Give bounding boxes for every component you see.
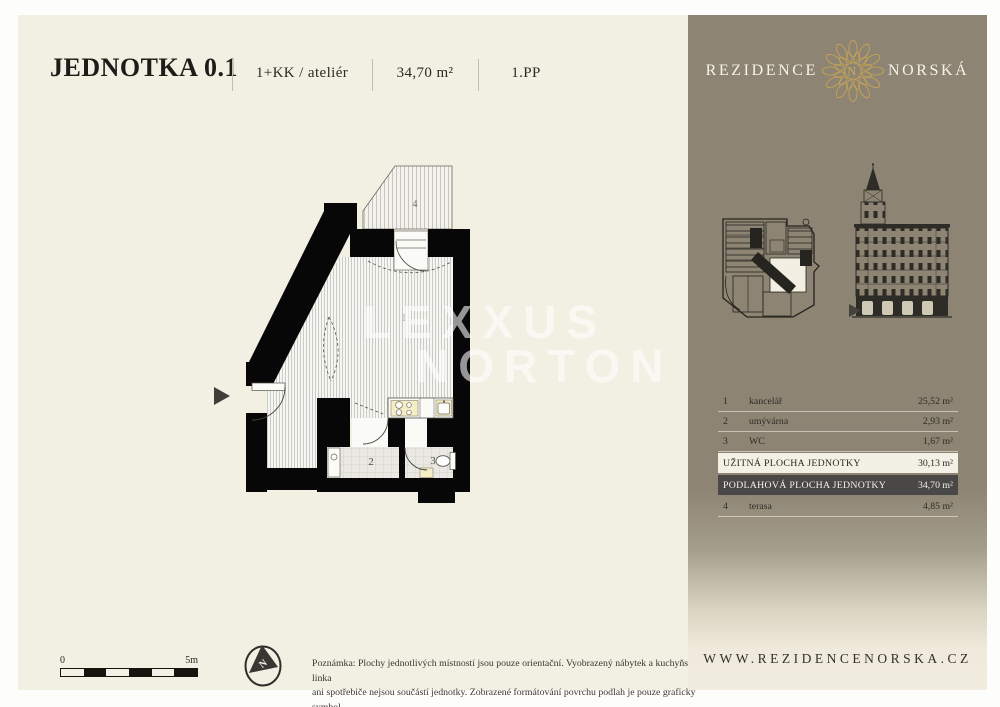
legend-room-area: 2,93 m²: [923, 416, 953, 427]
unit-layout-label: 1+KK / ateliér: [232, 65, 372, 82]
website-link[interactable]: WWW.REZIDENCENORSKA.CZ: [688, 651, 987, 667]
room-legend-table: 1 kancelář 25,52 m² 2 umývárna 2,93 m² 3…: [718, 392, 958, 517]
legend-total-floor: PODLAHOVÁ PLOCHA JEDNOTKY 34,70 m²: [718, 475, 958, 495]
legend-total-label: UŽITNÁ PLOCHA JEDNOTKY: [723, 458, 918, 469]
legend-room-name: terasa: [749, 501, 923, 512]
brand-name-right: NORSKÁ: [888, 62, 969, 80]
legend-room-area: 25,52 m²: [918, 396, 953, 407]
legend-room-name: kancelář: [749, 396, 918, 407]
room-label-3: 3: [430, 455, 436, 467]
unit-floor-label: 1.PP: [478, 65, 574, 82]
legend-room-number: 1: [723, 396, 749, 407]
legend-total-area: 34,70 m²: [918, 480, 953, 491]
page-card: JEDNOTKA 0.1 1+KK / ateliér 34,70 m² 1.P…: [18, 15, 987, 690]
building-elevation-image: [848, 160, 958, 325]
room-label-4: 4: [413, 199, 418, 210]
brochure-page: JEDNOTKA 0.1 1+KK / ateliér 34,70 m² 1.P…: [0, 0, 1000, 707]
page-title: JEDNOTKA 0.1: [50, 53, 238, 83]
legend-room-area: 1,67 m²: [923, 436, 953, 447]
disclaimer-note: Poznámka: Plochy jednotlivých místností …: [312, 657, 704, 707]
note-line2: ani spotřebiče nejsou součástí jednotky.…: [312, 687, 696, 707]
legend-room-number: 2: [723, 416, 749, 427]
legend-room-name: umývárna: [749, 416, 923, 427]
legend-room-area: 4,85 m²: [923, 501, 953, 512]
kitchen-counter: [388, 398, 453, 418]
stove: [391, 401, 418, 417]
scale-start-label: 0: [60, 655, 65, 666]
note-line1: Poznámka: Plochy jednotlivých místností …: [312, 658, 697, 684]
brand-wreath-icon: N: [821, 39, 885, 103]
watermark-line2: NORTON: [415, 343, 674, 389]
legend-total-usable: UŽITNÁ PLOCHA JEDNOTKY 30,13 m²: [718, 453, 958, 473]
entrance-door-leaf: [252, 383, 285, 391]
scale-bar: 0 5m: [60, 655, 198, 677]
legend-row-3: 3 WC 1,67 m²: [718, 432, 958, 452]
legend-row-1: 1 kancelář 25,52 m²: [718, 392, 958, 412]
scale-end-label: 5m: [185, 655, 198, 666]
brand-logo: REZIDENCE: [688, 39, 987, 103]
room-label-2: 2: [368, 456, 374, 468]
terrace-room: [363, 166, 452, 229]
watermark-line1: LEXXUS: [363, 299, 607, 345]
legend-room-number: 3: [723, 436, 749, 447]
scale-bar-segments: [60, 668, 198, 677]
legend-total-area: 30,13 m²: [918, 458, 953, 469]
sidebar: REZIDENCE: [688, 15, 987, 690]
entrance-arrow-icon: [214, 387, 230, 405]
unit-area-label: 34,70 m²: [372, 65, 478, 82]
floorplan-panel: JEDNOTKA 0.1 1+KK / ateliér 34,70 m² 1.P…: [18, 15, 688, 690]
legend-row-2: 2 umývárna 2,93 m²: [718, 412, 958, 432]
compass-icon: N: [243, 637, 287, 693]
brand-name-left: REZIDENCE: [706, 62, 818, 80]
terrace-door: [394, 231, 428, 271]
legend-row-4: 4 terasa 4,85 m²: [718, 497, 958, 517]
brand-monogram: N: [847, 65, 859, 79]
site-plan-image: [715, 210, 825, 325]
legend-room-number: 4: [723, 501, 749, 512]
toilet: [436, 456, 450, 467]
legend-total-label: PODLAHOVÁ PLOCHA JEDNOTKY: [723, 480, 918, 491]
legend-room-name: WC: [749, 436, 923, 447]
washroom-room: [327, 447, 399, 478]
wc-door-channel: [405, 418, 427, 447]
